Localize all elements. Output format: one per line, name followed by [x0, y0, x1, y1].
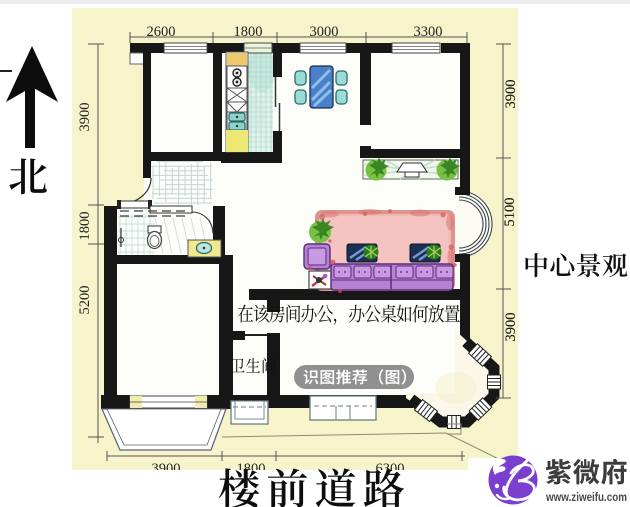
svg-text:3300: 3300: [414, 24, 443, 40]
svg-text:5100: 5100: [502, 198, 518, 227]
svg-text:5200: 5200: [77, 286, 93, 315]
svg-text:3900: 3900: [503, 80, 519, 109]
svg-text:1800: 1800: [234, 24, 263, 40]
svg-text:3000: 3000: [310, 24, 339, 40]
svg-text:2600: 2600: [147, 24, 176, 40]
svg-text:3900: 3900: [77, 103, 93, 132]
svg-text:3900: 3900: [503, 313, 519, 342]
svg-text:1800: 1800: [77, 212, 93, 241]
svg-text:www.ziweifu.com: www.ziweifu.com: [545, 490, 627, 504]
